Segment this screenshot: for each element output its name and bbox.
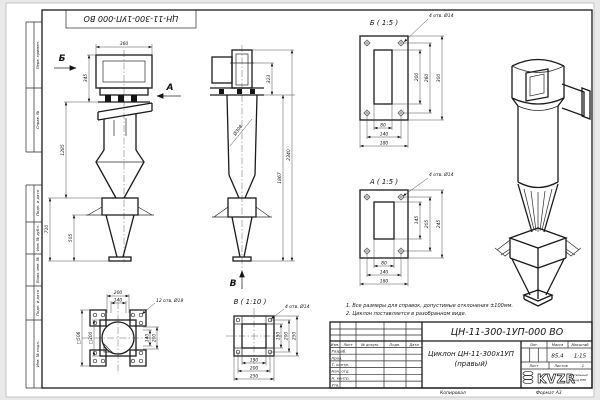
dim-sq506: □506	[76, 331, 82, 344]
tb-role: Н. контр.	[332, 376, 350, 381]
tb-sheet-label: Лист	[528, 364, 539, 368]
dv-dim-150r: 150	[276, 332, 282, 341]
company-name-line2: завод РЭП	[570, 378, 587, 382]
tb-name-line2: (правый)	[455, 360, 488, 368]
tb-sheets-label: Листов	[553, 364, 567, 368]
db-dim-180: 180	[380, 141, 389, 147]
detail-a-holes: 4 отв. Ø14	[429, 171, 454, 178]
tb-mass-label: Масса	[552, 343, 563, 347]
dv-dim-250b: 250	[250, 374, 259, 380]
copied-label: Копировал	[440, 390, 466, 396]
da-dim-205: 205	[424, 220, 430, 229]
dv-dim-250r: 250	[292, 332, 298, 341]
dim-200-top: 200	[114, 290, 123, 296]
dv-dim-200b: 200	[250, 366, 259, 372]
db-dim-300: 300	[436, 74, 442, 83]
da-dim-245: 245	[436, 220, 442, 229]
db-dim-200: 200	[414, 73, 420, 82]
tb-scale-value: 1:15	[574, 354, 587, 360]
dim-323: 323	[266, 75, 272, 84]
dim-2340: 2340	[286, 149, 292, 161]
dim-360: 360	[120, 41, 129, 47]
dim-1285: 1285	[60, 144, 66, 156]
tb-col-list: Лист	[342, 343, 353, 347]
da-dim-180: 180	[380, 279, 389, 285]
company-name-line1: Котельный	[570, 373, 588, 377]
detail-b-holes: 4 отв. Ø14	[429, 12, 454, 19]
dim-505: 505	[68, 234, 74, 243]
note-1: 1. Все размеры для справок, допустимые о…	[346, 303, 513, 309]
dim-200-right: 200	[152, 334, 158, 343]
tb-mass-value: 85,4	[551, 354, 564, 360]
drawing-sheet: Перв. примен. Справ. № Подп. и дата Инв.…	[0, 0, 600, 400]
holes-note-12: 12 отв. Ø18	[156, 297, 183, 304]
tb-col-izm: Изм.	[331, 343, 339, 347]
cyclone-drawing: Перв. примен. Справ. № Подп. и дата Инв.…	[0, 0, 600, 400]
tb-lit-label: Лит.	[529, 343, 538, 347]
tb-designation: ЦН-11-300-1УП-000 ВО	[451, 327, 564, 338]
view-v-holes: 4 отв. Ø14	[285, 303, 310, 310]
tb-role: Утв.	[332, 382, 340, 387]
dv-dim-150b: 150	[250, 358, 259, 364]
view-arrow-v-label: В	[230, 279, 237, 289]
tb-role: Нач. отд.	[332, 369, 350, 374]
dim-sq300: □300	[88, 331, 94, 344]
dim-140-right: 140	[145, 334, 151, 343]
da-dim-140: 140	[380, 270, 389, 276]
margin-label: Инв. № подл.	[35, 341, 40, 367]
format-label: Формат А3	[536, 390, 562, 396]
tb-col-dokum: № докум.	[360, 343, 379, 347]
dim-1867: 1867	[277, 172, 283, 184]
detail-a-title: А ( 1:5 )	[369, 178, 398, 186]
view-arrow-b-label: Б	[59, 54, 66, 64]
dim-710: 710	[44, 225, 50, 234]
note-2: 2. Циклон поставляется в разобранном вид…	[346, 311, 466, 317]
dim-140-top: 140	[114, 298, 123, 304]
tb-col-data: Дата	[408, 343, 418, 347]
margin-label: Подп. и дата	[35, 189, 40, 216]
tb-role: Пров.	[332, 355, 343, 360]
da-dim-145: 145	[414, 216, 420, 225]
margin-label: Перв. примен.	[35, 41, 40, 70]
margin-label: Подп. и дата	[35, 289, 40, 316]
tb-role: Разраб.	[332, 349, 347, 354]
db-dim-140: 140	[380, 132, 389, 138]
view-arrow-a-label: А	[166, 83, 174, 93]
margin-label: Инв. № дубл.	[35, 225, 40, 251]
view-v-title: В ( 1:10 )	[234, 298, 267, 306]
tb-name-line1: Циклон ЦН-11-300х1УП	[428, 350, 515, 358]
stamp-text: ЦН-11-300-1УП-000 ВО	[84, 14, 179, 23]
margin-label: Справ. №	[35, 111, 40, 130]
tb-scale-label: Масштаб	[571, 343, 589, 347]
margin-label: Взам. инв. №	[35, 257, 40, 283]
db-dim-80: 80	[380, 123, 386, 129]
dim-345: 345	[83, 74, 89, 83]
tb-sheets-value: 1	[582, 363, 584, 368]
db-dim-260: 260	[424, 74, 430, 83]
detail-b-title: Б ( 1:5 )	[370, 19, 398, 27]
da-dim-80: 80	[381, 261, 387, 267]
tb-role: Т. контр.	[332, 362, 350, 367]
tb-col-podp: Подп.	[390, 343, 401, 347]
dv-dim-200r: 200	[284, 332, 290, 341]
